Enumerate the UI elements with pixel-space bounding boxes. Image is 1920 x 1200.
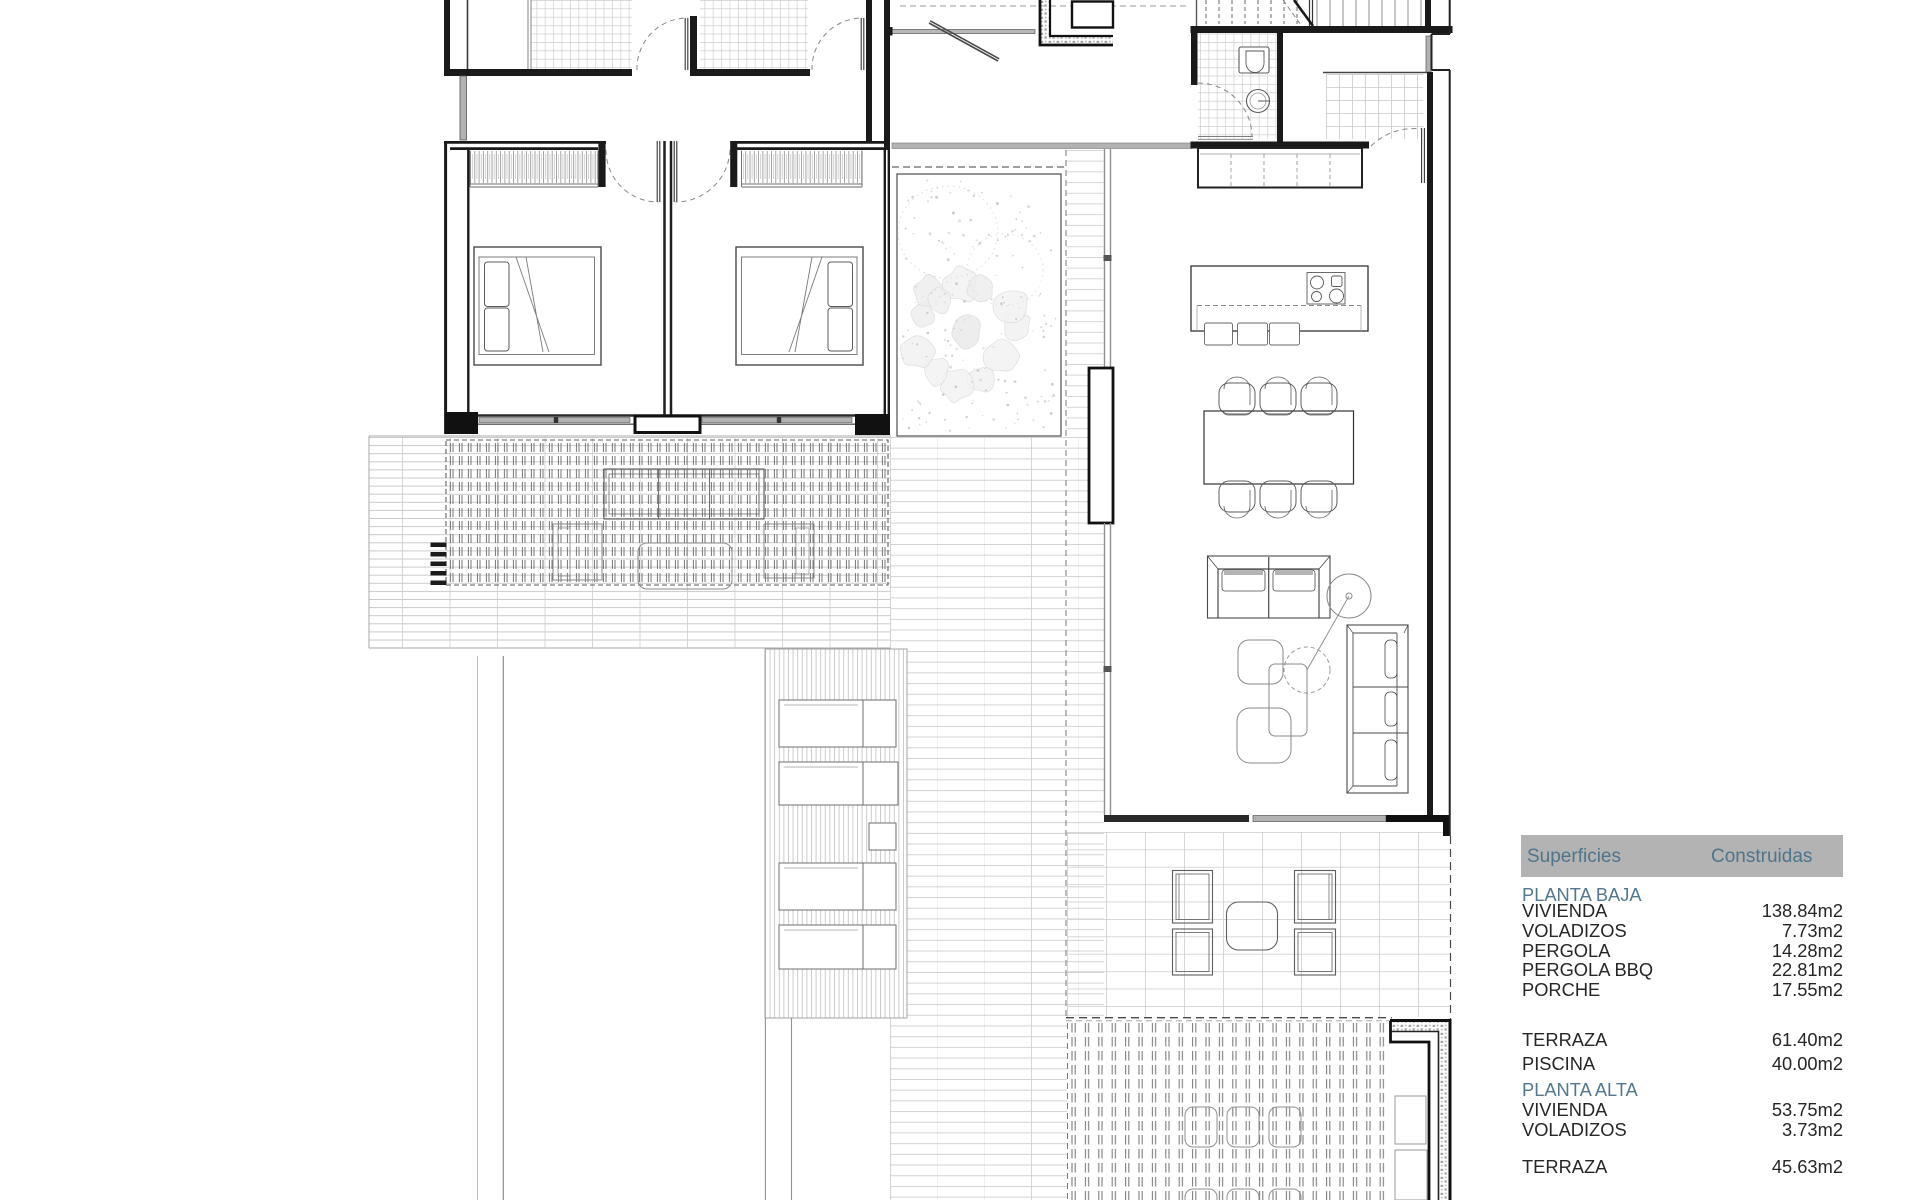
svg-text:PORCHE: PORCHE xyxy=(1522,979,1600,1000)
svg-text:TERRAZA: TERRAZA xyxy=(1522,1029,1608,1050)
svg-text:Construidas: Construidas xyxy=(1711,846,1812,867)
svg-text:7.73m2: 7.73m2 xyxy=(1782,920,1843,941)
svg-text:VIVIENDA: VIVIENDA xyxy=(1522,900,1608,921)
svg-text:TERRAZA: TERRAZA xyxy=(1522,1156,1608,1177)
svg-text:22.81m2: 22.81m2 xyxy=(1772,959,1843,980)
svg-text:61.40m2: 61.40m2 xyxy=(1772,1029,1843,1050)
svg-text:PERGOLA BBQ: PERGOLA BBQ xyxy=(1522,959,1653,980)
svg-text:53.75m2: 53.75m2 xyxy=(1772,1099,1843,1120)
svg-text:PERGOLA: PERGOLA xyxy=(1522,940,1611,961)
svg-text:VOLADIZOS: VOLADIZOS xyxy=(1522,1119,1627,1140)
svg-text:PISCINA: PISCINA xyxy=(1522,1053,1596,1074)
svg-text:14.28m2: 14.28m2 xyxy=(1772,940,1843,961)
svg-text:17.55m2: 17.55m2 xyxy=(1772,979,1843,1000)
svg-text:45.63m2: 45.63m2 xyxy=(1772,1156,1843,1177)
svg-text:VIVIENDA: VIVIENDA xyxy=(1522,1099,1608,1120)
svg-text:40.00m2: 40.00m2 xyxy=(1772,1053,1843,1074)
svg-text:138.84m2: 138.84m2 xyxy=(1762,900,1843,921)
svg-text:Superficies: Superficies xyxy=(1527,846,1621,867)
svg-text:VOLADIZOS: VOLADIZOS xyxy=(1522,920,1627,941)
svg-text:3.73m2: 3.73m2 xyxy=(1782,1119,1843,1140)
svg-text:PLANTA ALTA: PLANTA ALTA xyxy=(1522,1079,1639,1100)
